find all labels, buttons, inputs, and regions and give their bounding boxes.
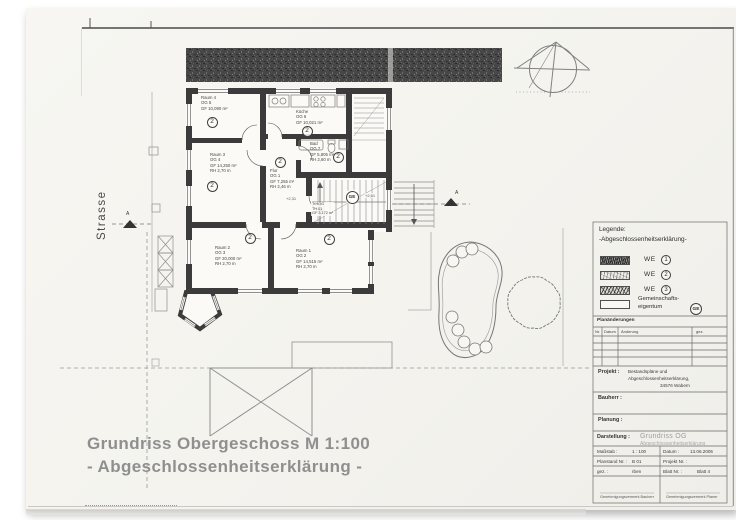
gez-value: rben <box>632 469 641 474</box>
approval-right: Genehmigungsvermerk Planer <box>666 495 718 499</box>
north-arrow-icon <box>514 42 590 97</box>
bush-icon <box>508 277 560 329</box>
street-label: Strasse <box>96 191 108 241</box>
changes-heading: Planänderungen <box>597 318 635 323</box>
gez-label: gez. : <box>597 469 608 474</box>
legend-ge-badge: GE <box>690 303 702 315</box>
projekt-line3: 34576 Wabern <box>660 383 690 388</box>
projekt-line1: Bestandspläne und <box>628 369 667 374</box>
projekt-label: Projekt : <box>598 369 620 375</box>
legend-common-label: Gemeinschafts-eigentum <box>638 296 679 311</box>
room-label-treppenhaus: TrHOGTH 01GF 3,172 m² <box>311 202 334 216</box>
datum-label: Datum : <box>663 449 679 454</box>
room-label-raum3: Raum 3OG 4GF 14,250 m²RH 2,70 m <box>210 152 237 174</box>
legend-we1-number: 1 <box>661 255 671 265</box>
darstellung-value-2: Abgeschlossenheitserklärung <box>640 441 705 447</box>
section-label-right: A <box>455 190 458 196</box>
drawing-title: Grundriss Obergeschoss M 1:100 - Abgesch… <box>87 432 370 478</box>
room-label-raum2: Raum 2OG 3GF 20,000 m²RH 2,70 m <box>215 245 242 267</box>
datum-value: 13.06.2005 <box>690 449 713 454</box>
room-label-raum4: Raum 4OG 5GF 10,090 m² <box>201 95 228 111</box>
unit-badge-flur: 2 <box>275 157 286 168</box>
level-mark-right: +2,61 <box>365 193 375 198</box>
ge-badge-stair: GE <box>346 191 359 204</box>
scanned-floor-plan-page: { "drawing": { "title_line1": "Grundriss… <box>0 0 736 520</box>
section-label-left: A <box>126 211 129 217</box>
room-label-bad: BadOG 7GF 5,805 m²RH 2,60 m <box>310 141 334 163</box>
approval-left: Genehmigungsvermerk Bauherr <box>600 495 654 499</box>
legend-swatch-common <box>600 300 630 309</box>
left-terrain-elements <box>149 92 173 312</box>
changes-col-aenderung: Änderung <box>621 329 638 334</box>
changes-col-nr: Nr. <box>595 329 600 334</box>
unit-badge-bad: 2 <box>333 152 344 163</box>
unit-badge-raum2: 2 <box>245 233 256 244</box>
legend-we3-label: WE <box>644 286 656 293</box>
legend-swatch-we3 <box>600 286 630 295</box>
level-mark-left: +2,31 <box>286 196 296 201</box>
room-label-flur: FlurOG 1GF 7,255 m²RH 2,46 m <box>270 168 294 190</box>
bauherr-label: Bauherr : <box>598 395 622 401</box>
darstellung-label: Darstellung : <box>597 434 630 440</box>
blattnr-value: Blatt 4 <box>697 469 710 474</box>
legend-heading-2: -Abgeschlossenheitserklärung- <box>599 236 687 243</box>
garden-pond <box>438 242 560 358</box>
projektnr-label: Projekt Nr. : <box>663 459 687 464</box>
bay-window <box>180 292 220 329</box>
legend-we3-number: 3 <box>661 285 671 295</box>
legend-swatch-we2 <box>600 271 630 280</box>
garage-outline <box>210 342 392 436</box>
unit-badge-raum4: 2 <box>207 117 218 128</box>
massstab-label: Maßstab : <box>597 449 617 454</box>
unit-badge-raum1: 2 <box>324 234 335 245</box>
legend-we2-label: WE <box>644 271 656 278</box>
planstand-value: B 01 <box>632 459 641 464</box>
room-label-raum1: Raum 1OG 2GF 14,515 m²RH 2,70 m <box>296 248 323 270</box>
changes-col-datum: Datum <box>604 329 616 334</box>
legend-we1-label: WE <box>644 256 656 263</box>
legend-heading-1: Legende: <box>599 226 626 233</box>
changes-col-gez: gez. <box>696 329 704 334</box>
planstand-label: Planstand Nr. : <box>597 459 627 464</box>
massstab-value: 1 : 100 <box>632 449 646 454</box>
projekt-line2: Abgeschlossenheitserklärung, <box>628 376 689 381</box>
unit-badge-kueche: 2 <box>302 126 313 137</box>
footer-dotted-line <box>85 505 177 506</box>
blattnr-label: Blatt Nr. : <box>663 469 682 474</box>
legend-we2-number: 2 <box>661 270 671 280</box>
planung-label: Planung : <box>598 417 623 423</box>
unit-badge-raum3: 2 <box>207 181 218 192</box>
room-label-kueche: KücheOG 6GF 10,021 m² <box>296 109 323 125</box>
legend-swatch-we1 <box>600 256 630 265</box>
trellis-hatch <box>158 236 173 287</box>
darstellung-value-1: Grundriss OG <box>640 433 687 440</box>
